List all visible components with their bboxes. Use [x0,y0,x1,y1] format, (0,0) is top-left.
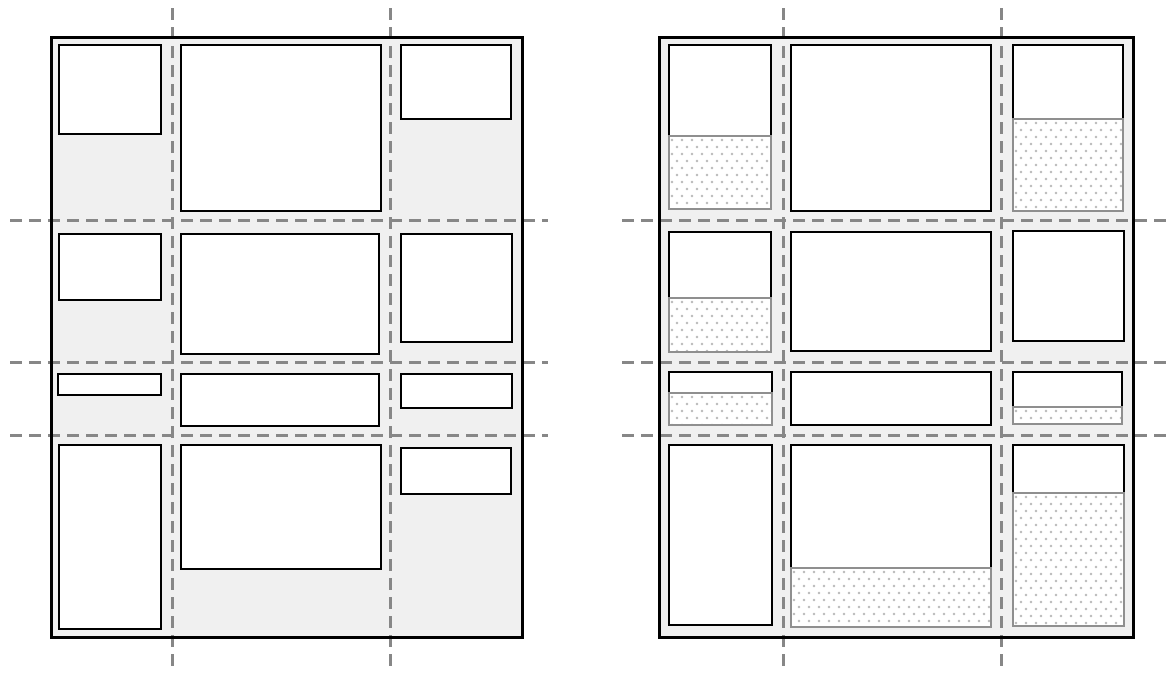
grid-diagram-left-item-r4c3 [400,447,512,495]
grid-diagram-right-reserved-space-r4c3 [1012,492,1125,627]
grid-diagram-left-item-r1c2 [180,44,382,212]
grid-diagram-right-item-r2c1 [668,231,772,297]
grid-diagram-right-item-r3c1 [668,371,773,392]
grid-diagram-right-item-r1c1 [668,44,772,135]
grid-diagram-right-reserved-space-r3c1 [668,392,773,426]
grid-layout-comparison-diagram [0,0,1171,679]
grid-diagram-right-item-r3c2 [790,371,992,426]
grid-diagram-right-item-r2c2 [790,231,992,352]
grid-diagram-left-item-r3c3 [400,373,513,409]
grid-diagram-right-item-r3c3 [1012,371,1123,406]
grid-diagram-right-item-r1c3 [1012,44,1124,118]
grid-diagram-right-item-r1c2 [790,44,992,212]
grid-diagram-left-item-r1c1 [58,44,162,135]
grid-diagram-right-item-r4c3 [1012,444,1125,492]
grid-diagram-right-reserved-space-r2c1 [668,297,772,353]
grid-diagram-right-reserved-space-r3c3 [1012,406,1123,425]
grid-diagram-left-item-r2c3 [400,233,513,343]
grid-diagram-right-item-r4c1 [668,444,773,626]
grid-diagram-right-item-r2c3 [1012,230,1125,342]
grid-diagram-right-reserved-space-r1c3 [1012,118,1124,212]
grid-diagram-left-item-r4c2 [180,444,382,570]
grid-diagram-left-item-r3c1 [57,373,162,396]
grid-diagram-right-reserved-space-r1c1 [668,135,772,210]
grid-diagram-left-item-r1c3 [400,44,512,120]
grid-diagram-left-item-r2c1 [58,233,162,301]
grid-diagram-left-item-r2c2 [180,233,380,355]
grid-diagram-right-item-r4c2 [790,444,992,567]
grid-diagram-right-reserved-space-r4c2 [790,567,992,628]
grid-diagram-left-item-r4c1 [58,444,162,630]
grid-diagram-left-item-r3c2 [180,373,380,427]
